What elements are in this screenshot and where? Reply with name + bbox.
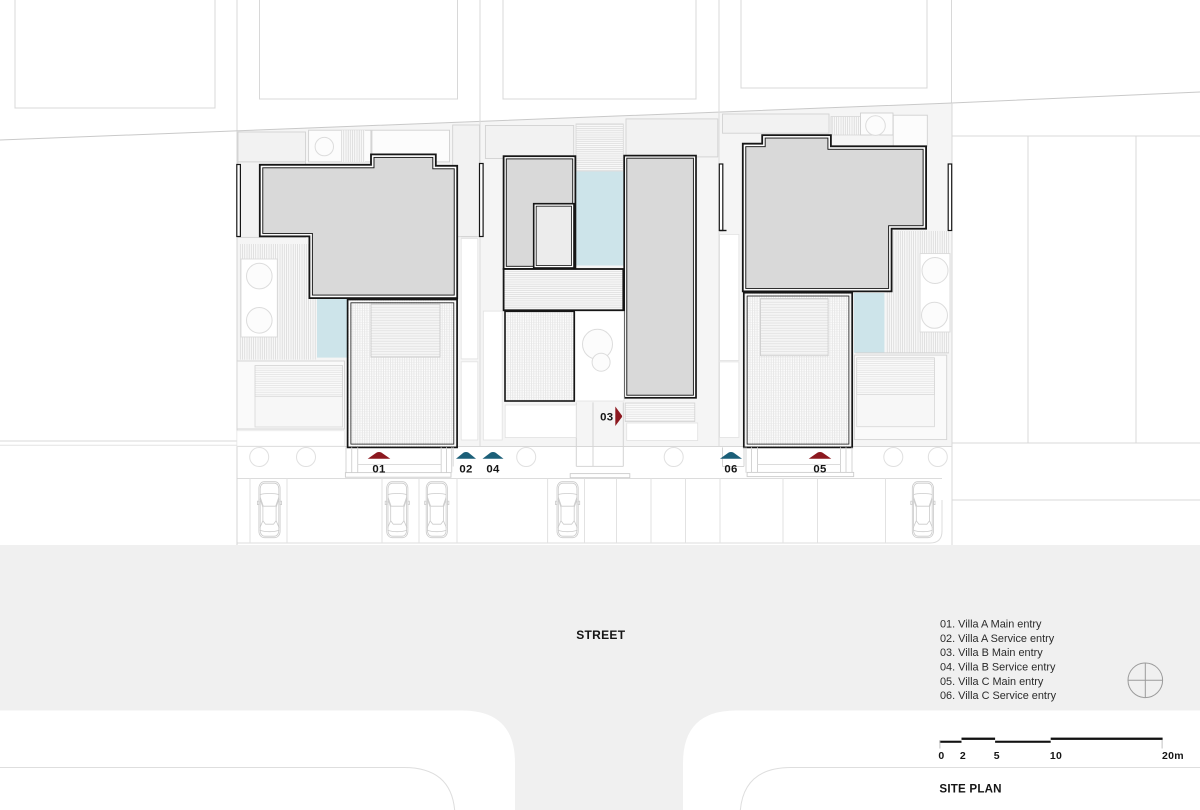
svg-text:05: 05 bbox=[813, 464, 827, 476]
svg-text:03. Villa B Main entry: 03. Villa B Main entry bbox=[940, 647, 1043, 659]
svg-text:02: 02 bbox=[459, 464, 472, 476]
svg-text:5: 5 bbox=[994, 750, 1000, 762]
svg-text:02. Villa A Service entry: 02. Villa A Service entry bbox=[940, 633, 1055, 645]
svg-text:STREET: STREET bbox=[576, 628, 626, 642]
svg-text:06. Villa C Service entry: 06. Villa C Service entry bbox=[940, 690, 1057, 702]
svg-text:10: 10 bbox=[1050, 750, 1062, 762]
svg-text:05. Villa C Main entry: 05. Villa C Main entry bbox=[940, 676, 1044, 688]
svg-text:04: 04 bbox=[486, 464, 500, 476]
svg-text:03: 03 bbox=[600, 411, 613, 423]
svg-text:2: 2 bbox=[960, 750, 966, 762]
svg-text:04. Villa B Service entry: 04. Villa B Service entry bbox=[940, 661, 1056, 673]
svg-text:01: 01 bbox=[372, 464, 386, 476]
svg-text:20m: 20m bbox=[1162, 750, 1184, 762]
svg-text:06: 06 bbox=[724, 464, 737, 476]
svg-text:0: 0 bbox=[938, 750, 944, 762]
svg-text:SITE PLAN: SITE PLAN bbox=[939, 783, 1001, 796]
svg-text:01. Villa A Main entry: 01. Villa A Main entry bbox=[940, 618, 1042, 630]
